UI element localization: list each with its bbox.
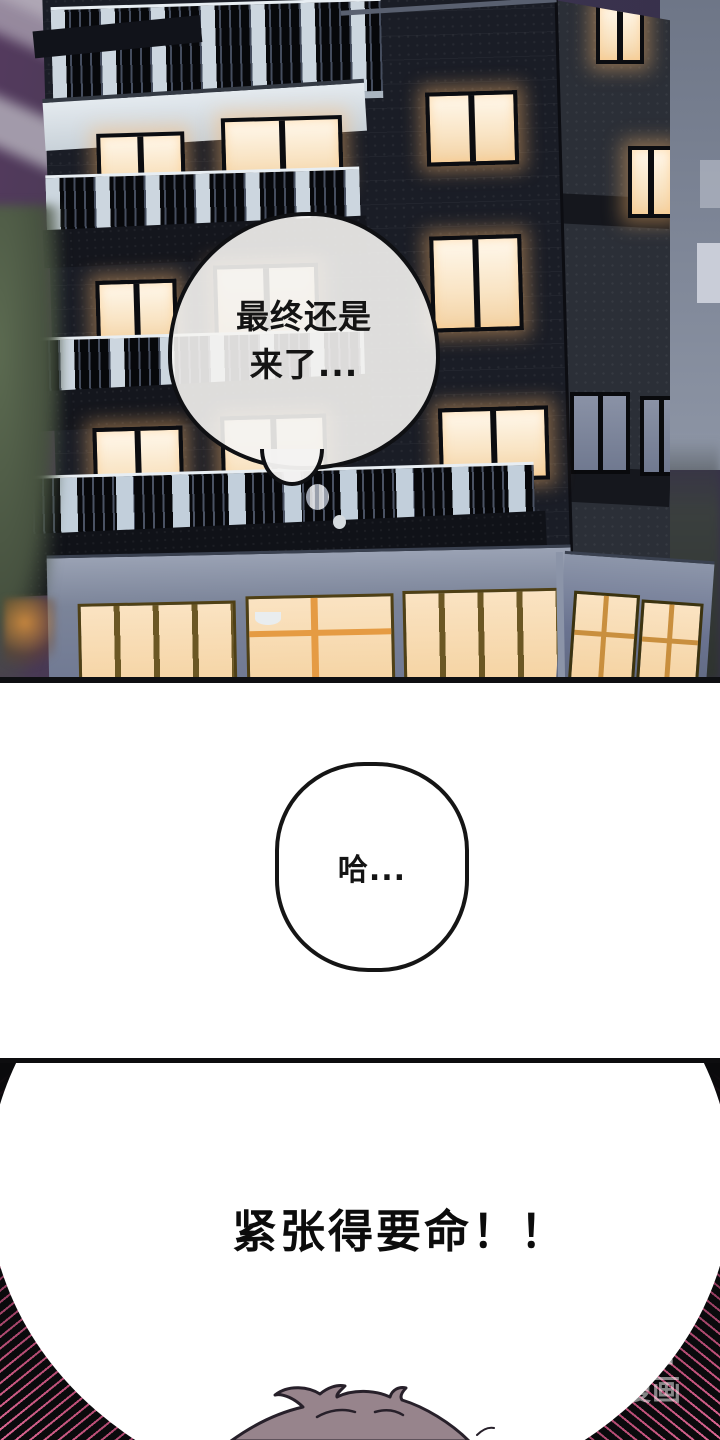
lit-window bbox=[425, 90, 519, 167]
wall-light bbox=[255, 612, 281, 625]
storefront-window bbox=[568, 591, 640, 683]
thought-bubble-dot bbox=[333, 515, 346, 529]
dark-window bbox=[570, 392, 630, 474]
lit-window bbox=[429, 234, 524, 333]
storefront-window bbox=[245, 593, 395, 683]
thought-line-1: 最终还是 bbox=[236, 293, 372, 341]
street-light-blur bbox=[4, 598, 56, 680]
watermark-tagline: 免费漫画 bbox=[562, 1367, 682, 1409]
storefront-window bbox=[402, 588, 562, 683]
panel-shout: 紧张得要命！！ 画涯 免费漫画 bbox=[0, 1058, 720, 1440]
panel-night-building: 最终还是 来了... bbox=[0, 0, 720, 683]
thought-bubble-text: 最终还是 来了... bbox=[236, 293, 372, 389]
storefront-window bbox=[78, 601, 238, 683]
neighbor-window bbox=[700, 160, 720, 208]
storefront-window bbox=[636, 599, 704, 683]
thought-line-2: 来了... bbox=[236, 341, 372, 389]
lit-window bbox=[628, 146, 674, 218]
window-mullion bbox=[598, 596, 609, 681]
speech-bubble: 哈... bbox=[275, 762, 469, 972]
shout-text: 紧张得要命！！ bbox=[0, 1195, 720, 1260]
lit-window bbox=[596, 2, 644, 64]
character-hair bbox=[225, 1381, 495, 1440]
ground-floor-side-wall bbox=[555, 551, 714, 683]
window-mullion bbox=[311, 598, 320, 683]
ground-floor-wall bbox=[47, 545, 574, 683]
watermark-logo: 画涯 bbox=[560, 1297, 676, 1378]
window-mullion bbox=[249, 628, 391, 637]
thought-bubble-dot bbox=[306, 484, 329, 510]
comic-page: 最终还是 来了... 哈... 紧张得要命！！ 画涯 免费漫画 bbox=[0, 0, 720, 1440]
neighbor-window bbox=[697, 243, 720, 303]
speech-bubble-text: 哈... bbox=[338, 845, 406, 889]
